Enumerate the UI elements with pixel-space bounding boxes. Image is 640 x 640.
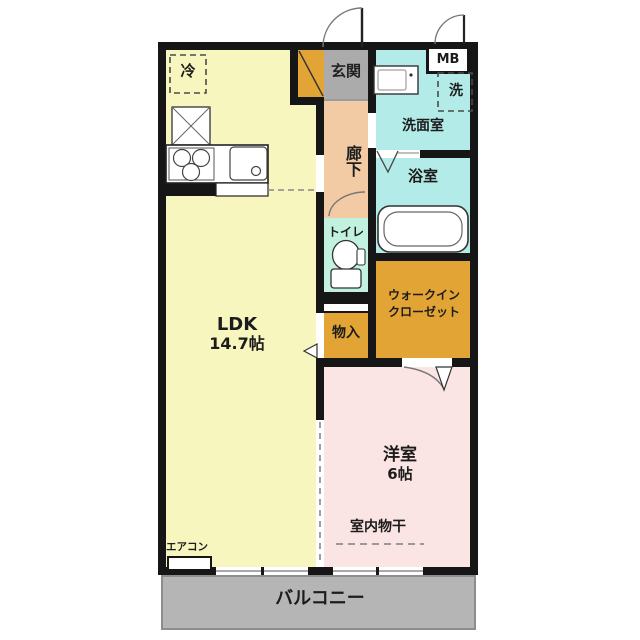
bathroom-label: 浴室 — [376, 169, 470, 185]
storage-label: 物入 — [324, 326, 368, 341]
wall-divider-lower — [368, 148, 376, 358]
entrance-label: 玄関 — [324, 64, 368, 80]
shoe-cabinet — [298, 50, 324, 97]
meter-box: MB — [426, 46, 470, 74]
refrigerator-label: 冷 — [170, 64, 206, 80]
hallway-label: 廊下 — [334, 130, 360, 192]
balcony-label: バルコニー — [220, 590, 420, 609]
wall-washroom-bathroom — [420, 150, 470, 158]
wall-spine-lower — [316, 358, 324, 420]
entrance-step-line — [324, 99, 368, 101]
storage-shelf-symbol — [324, 302, 368, 313]
wall-kitchen-half — [166, 183, 216, 196]
wall-outer-right — [470, 42, 478, 575]
bedroom-size-label: 6帖 — [350, 467, 450, 483]
wall-bedroom-top-right — [452, 358, 478, 367]
washing-machine-label: 洗 — [443, 84, 469, 99]
wall-bedroom-top-left — [316, 358, 402, 367]
floor-plan: MB — [0, 0, 640, 640]
ldk-size-label: 14.7帖 — [187, 336, 287, 353]
indoor-drying-label: 室内物干 — [330, 520, 426, 535]
washroom-label: 洗面室 — [376, 119, 470, 134]
air-conditioner-label: エアコン — [166, 542, 214, 553]
meter-box-door-arc — [435, 15, 464, 44]
closet-label-line2: クローゼット — [378, 306, 470, 319]
wall-outer-left — [158, 42, 166, 575]
wall-bathroom-closet — [376, 253, 470, 261]
bath-door-gap — [376, 150, 420, 158]
bedroom-name-label: 洋室 — [350, 447, 450, 465]
window-bedroom-tick — [376, 567, 379, 575]
wall-entrance-left — [290, 42, 298, 105]
wall-toilet-bottom — [316, 292, 376, 302]
room-ldk — [166, 50, 316, 567]
air-conditioner-box — [167, 556, 212, 571]
ldk-name-label: LDK — [187, 316, 287, 335]
toilet-label: トイレ — [322, 226, 370, 239]
wall-spine-upper — [316, 105, 324, 155]
window-ldk-tick — [261, 567, 264, 575]
wall-under-shoe-cabinet — [290, 97, 324, 105]
closet-label-line1: ウォークイン — [378, 289, 470, 302]
storage-door-face — [316, 313, 324, 358]
meter-box-label: MB — [429, 53, 467, 67]
wall-divider-upper — [368, 42, 376, 113]
